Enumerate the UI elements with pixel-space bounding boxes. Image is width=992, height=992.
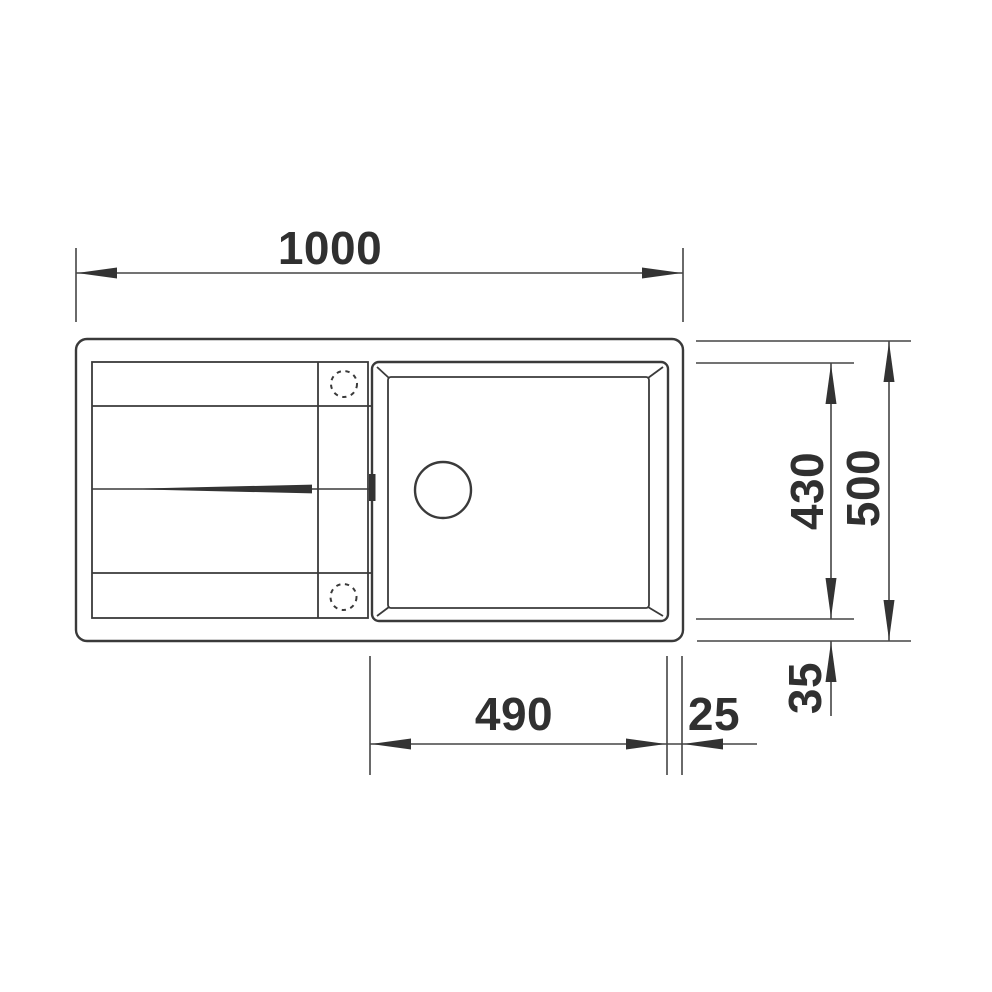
slope-arrow-icon — [122, 485, 312, 494]
bowl-outer-edge — [372, 362, 668, 621]
drainboard-slope-group — [122, 474, 376, 501]
overflow-channel-mark — [369, 474, 376, 501]
arrow-left-icon — [371, 739, 411, 750]
arrow-right-icon — [626, 739, 666, 750]
dim-label-bottom-rim-offset: 35 — [779, 662, 831, 714]
dim-label-overall-width: 1000 — [278, 222, 382, 274]
dim-label-bowl-width: 490 — [475, 688, 553, 740]
technical-drawing-page: 1000 430 500 35 490 25 — [0, 0, 992, 992]
bowl-bevel-top-right — [648, 367, 663, 378]
tap-hole-top-icon — [331, 371, 357, 397]
dim-label-right-rim-offset: 25 — [688, 688, 740, 740]
bowl-bevel-bottom-right — [648, 607, 663, 616]
arrow-left-icon — [683, 739, 723, 750]
arrow-down-icon — [826, 578, 837, 618]
arrow-up-icon — [826, 364, 837, 404]
bowl-inner-edge — [388, 377, 649, 608]
bowl-bevel-bottom-left — [377, 607, 389, 616]
arrow-left-icon — [77, 268, 117, 279]
sink-technical-drawing: 1000 430 500 35 490 25 — [0, 0, 992, 992]
tap-hole-bottom-icon — [331, 584, 357, 610]
dim-label-bowl-depth: 430 — [781, 452, 833, 530]
drain-hole-icon — [415, 462, 471, 518]
dim-label-overall-depth: 500 — [837, 449, 889, 527]
arrow-up-icon — [884, 342, 895, 382]
arrow-down-icon — [884, 600, 895, 640]
arrow-right-icon — [642, 268, 682, 279]
bowl-bevel-top-left — [377, 367, 389, 378]
